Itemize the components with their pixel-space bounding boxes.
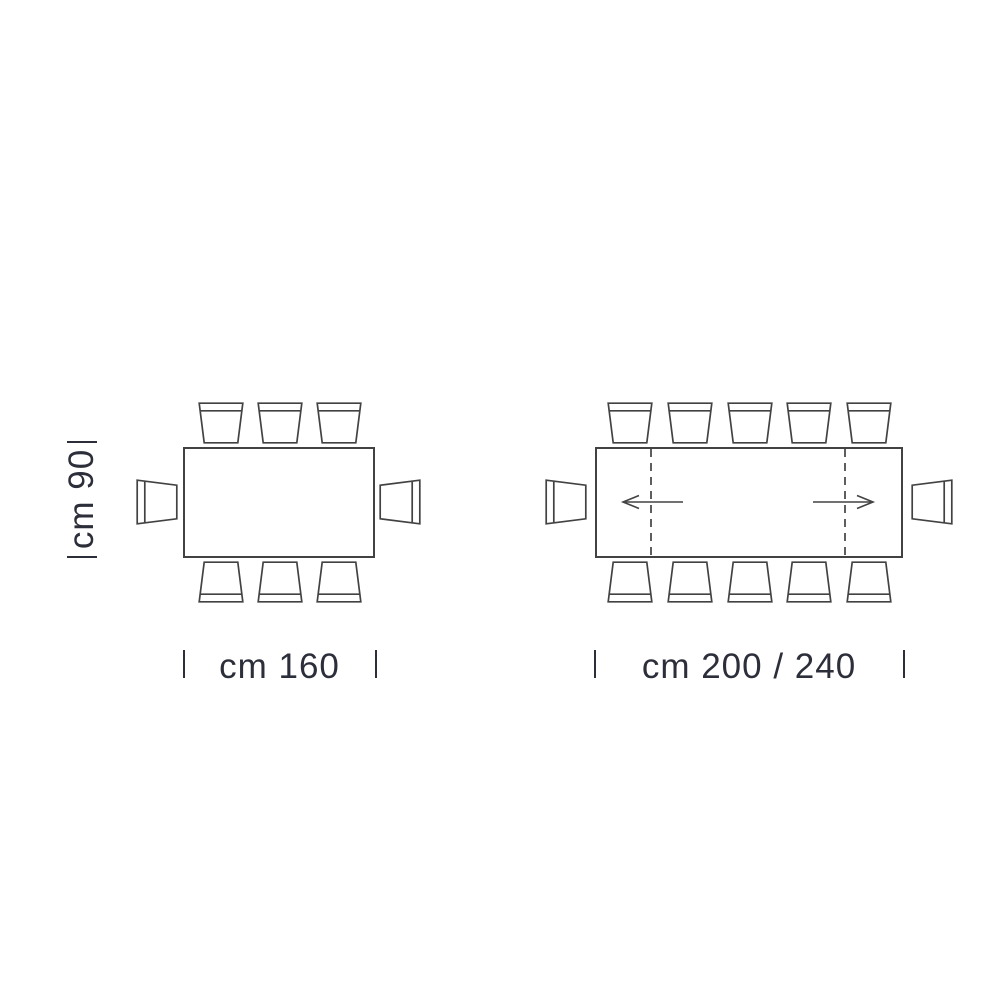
table-top-160	[183, 447, 375, 558]
chair-top	[257, 402, 303, 444]
chair-bottom	[846, 561, 892, 603]
chair-left	[545, 479, 587, 525]
chair-top	[316, 402, 362, 444]
chair-bottom	[257, 561, 303, 603]
chair-bottom	[607, 561, 653, 603]
chair-bottom	[667, 561, 713, 603]
dimension-tick	[903, 650, 905, 678]
chair-top	[846, 402, 892, 444]
chair-right	[379, 479, 421, 525]
table-top-200-240	[595, 447, 903, 558]
width-dimension-label-200-240: cm 200 / 240	[595, 646, 903, 688]
extension-arrow-right	[813, 496, 873, 509]
chair-top	[198, 402, 244, 444]
chair-top	[607, 402, 653, 444]
extension-arrow-left	[623, 496, 683, 509]
chair-top	[727, 402, 773, 444]
chair-top	[786, 402, 832, 444]
chair-bottom	[198, 561, 244, 603]
floorplan-diagram: cm 90 cm 160	[0, 0, 1000, 1000]
chair-left	[136, 479, 178, 525]
chair-bottom	[316, 561, 362, 603]
extension-marks	[597, 449, 901, 556]
chair-bottom	[727, 561, 773, 603]
chair-right	[911, 479, 953, 525]
chair-bottom	[786, 561, 832, 603]
chair-top	[667, 402, 713, 444]
width-dimension-label-160: cm 160	[183, 646, 376, 688]
depth-dimension-label: cm 90	[62, 434, 102, 564]
